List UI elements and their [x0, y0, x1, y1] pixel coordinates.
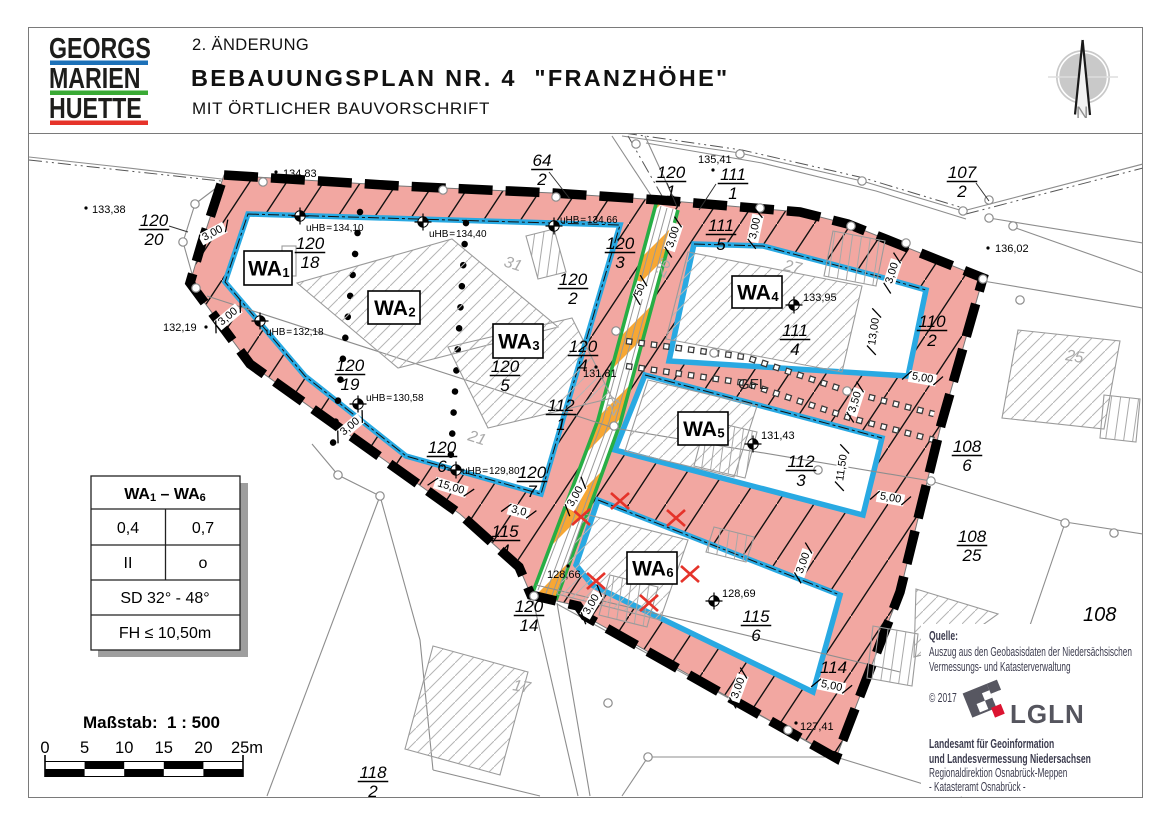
- svg-text:5: 5: [716, 235, 726, 254]
- svg-text:15: 15: [155, 739, 173, 757]
- svg-text:3: 3: [532, 338, 539, 353]
- svg-text:114: 114: [820, 658, 847, 677]
- svg-text:1: 1: [556, 415, 565, 434]
- svg-text:132,19: 132,19: [163, 322, 197, 334]
- svg-text:II: II: [124, 555, 133, 572]
- svg-text:112: 112: [787, 452, 815, 471]
- svg-text:134,83: 134,83: [283, 168, 317, 180]
- svg-text:120: 120: [569, 337, 598, 356]
- svg-text:120: 120: [515, 597, 544, 616]
- svg-text:6: 6: [962, 456, 972, 475]
- svg-text:uHB = 134,40: uHB = 134,40: [429, 229, 487, 240]
- svg-text:18: 18: [301, 253, 320, 272]
- svg-text:uHB = 134,10: uHB = 134,10: [306, 223, 364, 234]
- svg-text:25m: 25m: [231, 739, 263, 757]
- svg-text:Vermessungs- und Katasterverwa: Vermessungs- und Katasterverwaltung: [929, 660, 1071, 674]
- svg-text:120: 120: [140, 211, 169, 230]
- svg-text:3: 3: [796, 471, 806, 490]
- svg-text:© 2017: © 2017: [929, 691, 957, 705]
- svg-text:25: 25: [962, 546, 982, 565]
- svg-text:6: 6: [437, 457, 447, 476]
- svg-text:118: 118: [359, 763, 387, 782]
- svg-text:o: o: [199, 555, 208, 572]
- svg-text:2: 2: [567, 289, 578, 308]
- svg-text:2: 2: [408, 305, 415, 320]
- svg-text:WA: WA: [248, 258, 282, 281]
- svg-text:20: 20: [144, 230, 164, 249]
- svg-text:5: 5: [717, 426, 724, 441]
- svg-text:120: 120: [491, 357, 520, 376]
- svg-text:3: 3: [615, 253, 625, 272]
- svg-text:107: 107: [948, 163, 977, 182]
- svg-text:uHB = 134,66: uHB = 134,66: [560, 215, 618, 226]
- svg-text:120: 120: [336, 356, 365, 375]
- svg-text:Landesamt für Geoinformation: Landesamt für Geoinformation: [929, 737, 1054, 751]
- svg-text:WA: WA: [498, 331, 532, 354]
- svg-text:4: 4: [790, 340, 799, 359]
- svg-text:128,69: 128,69: [722, 588, 756, 600]
- svg-text:120: 120: [559, 270, 588, 289]
- svg-text:127,41: 127,41: [800, 721, 834, 733]
- svg-text:5: 5: [500, 376, 510, 395]
- svg-text:WA: WA: [632, 558, 666, 581]
- svg-text:120: 120: [428, 438, 457, 457]
- svg-text:111: 111: [708, 216, 734, 235]
- svg-text:SD 32° - 48°: SD 32° - 48°: [120, 590, 209, 607]
- svg-text:5: 5: [80, 739, 89, 757]
- svg-text:Regionaldirektion Osnabrück-Me: Regionaldirektion Osnabrück-Meppen: [929, 766, 1067, 780]
- svg-text:6: 6: [751, 626, 761, 645]
- svg-text:20: 20: [194, 739, 212, 757]
- svg-text:4: 4: [578, 356, 587, 375]
- svg-text:uHB = 132,18: uHB = 132,18: [266, 327, 324, 338]
- svg-text:131,81: 131,81: [583, 368, 617, 380]
- svg-text:108: 108: [958, 527, 987, 546]
- svg-text:uHB = 129,80: uHB = 129,80: [462, 466, 520, 477]
- svg-text:25: 25: [1063, 347, 1085, 367]
- svg-text:2. ÄNDERUNG: 2. ÄNDERUNG: [192, 36, 309, 54]
- svg-text:2: 2: [536, 170, 547, 189]
- svg-text:0: 0: [40, 739, 49, 757]
- svg-text:131,43: 131,43: [761, 430, 795, 442]
- svg-text:4: 4: [771, 289, 779, 304]
- svg-text:WA: WA: [374, 297, 408, 320]
- svg-text:1: 1: [728, 184, 737, 203]
- svg-text:Quelle:: Quelle:: [929, 629, 958, 643]
- svg-text:HUETTE: HUETTE: [49, 91, 142, 124]
- svg-text:10: 10: [115, 739, 133, 757]
- svg-text:4: 4: [500, 541, 509, 560]
- svg-text:112: 112: [547, 396, 575, 415]
- svg-text:LGLN: LGLN: [1010, 699, 1085, 729]
- svg-text:133,38: 133,38: [92, 204, 126, 216]
- svg-text:110: 110: [918, 312, 946, 331]
- svg-text:14: 14: [520, 616, 539, 635]
- svg-text:120: 120: [657, 163, 686, 182]
- svg-text:6: 6: [666, 565, 673, 580]
- svg-text:WA: WA: [683, 418, 717, 441]
- svg-text:108: 108: [953, 437, 982, 456]
- svg-text:128,66: 128,66: [547, 569, 581, 581]
- svg-text:111: 111: [720, 165, 746, 184]
- svg-text:WA: WA: [737, 282, 771, 305]
- svg-text:133,95: 133,95: [803, 292, 837, 304]
- svg-text:GEORGS: GEORGS: [49, 31, 151, 64]
- svg-text:Auszug aus den Geobasisdaten d: Auszug aus den Geobasisdaten der Nieders…: [929, 645, 1132, 659]
- svg-text:N: N: [1076, 103, 1088, 122]
- svg-text:MARIEN: MARIEN: [49, 61, 140, 94]
- svg-text:MIT ÖRTLICHER BAUVORSCHRIFT: MIT ÖRTLICHER BAUVORSCHRIFT: [192, 99, 490, 118]
- svg-text:115: 115: [742, 607, 770, 626]
- svg-text:64: 64: [533, 151, 552, 170]
- svg-text:uHB = 130,58: uHB = 130,58: [366, 393, 424, 404]
- svg-text:FH ≤ 10,50m: FH ≤ 10,50m: [119, 625, 211, 642]
- svg-text:1: 1: [282, 265, 289, 280]
- svg-text:19: 19: [341, 375, 360, 394]
- svg-text:108: 108: [1083, 604, 1116, 626]
- svg-text:WA1 – WA6: WA1 – WA6: [124, 486, 206, 504]
- svg-text:- Katasteramt Osnabrück -: - Katasteramt Osnabrück -: [929, 780, 1026, 794]
- svg-text:2: 2: [926, 331, 937, 350]
- svg-text:120: 120: [606, 234, 635, 253]
- svg-text:120: 120: [518, 463, 547, 482]
- svg-text:115: 115: [491, 522, 519, 541]
- svg-text:0,7: 0,7: [192, 520, 214, 537]
- svg-text:7: 7: [527, 482, 537, 501]
- svg-text:Maßstab: 1 : 500: Maßstab: 1 : 500: [83, 713, 220, 732]
- svg-text:GFL: GFL: [738, 376, 767, 393]
- svg-text:136,02: 136,02: [995, 243, 1029, 255]
- svg-text:120: 120: [296, 234, 325, 253]
- svg-text:BEBAUUNGSPLAN NR. 4 "FRANZHÖH: BEBAUUNGSPLAN NR. 4 "FRANZHÖHE": [191, 65, 729, 91]
- svg-text:0,4: 0,4: [117, 520, 139, 537]
- svg-text:111: 111: [782, 321, 808, 340]
- svg-text:2: 2: [956, 182, 967, 201]
- svg-text:und Landesvermessung Niedersac: und Landesvermessung Niedersachsen: [929, 752, 1091, 766]
